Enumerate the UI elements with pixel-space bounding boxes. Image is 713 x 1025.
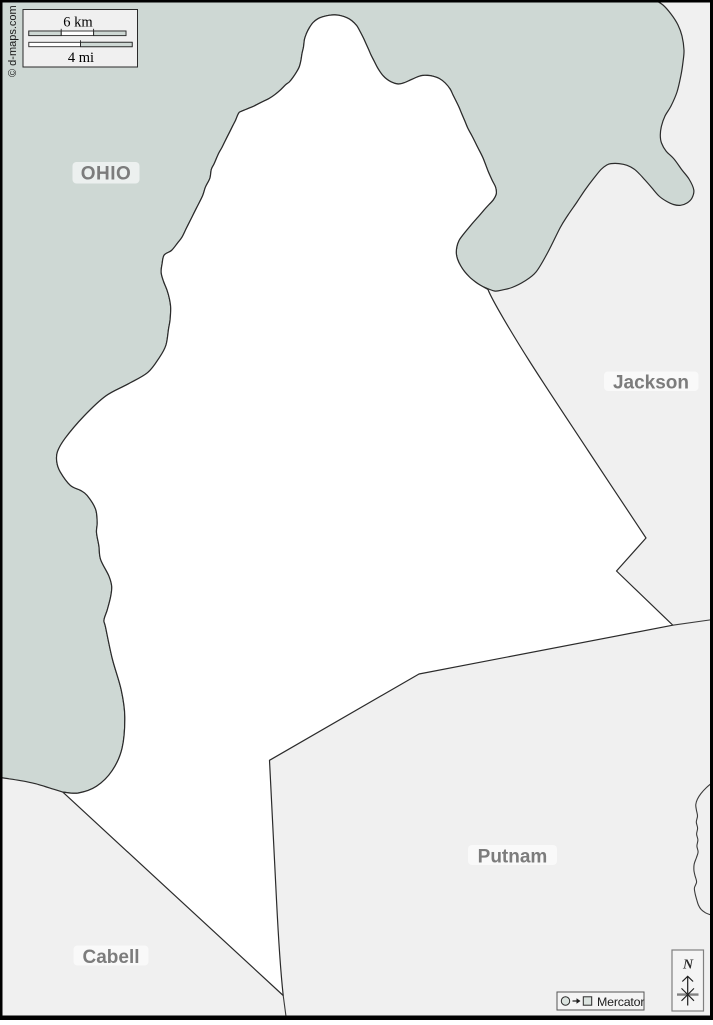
svg-text:Putnam: Putnam xyxy=(478,847,548,868)
svg-text:Cabell: Cabell xyxy=(82,947,139,968)
svg-text:4 mi: 4 mi xyxy=(68,50,94,66)
svg-text:N: N xyxy=(682,958,694,973)
svg-text:OHIO: OHIO xyxy=(81,164,132,185)
svg-text:Jackson: Jackson xyxy=(613,373,689,394)
svg-text:Mercator: Mercator xyxy=(597,995,644,1009)
svg-text:6 km: 6 km xyxy=(63,15,93,31)
svg-text:© d-maps.com: © d-maps.com xyxy=(7,5,19,77)
